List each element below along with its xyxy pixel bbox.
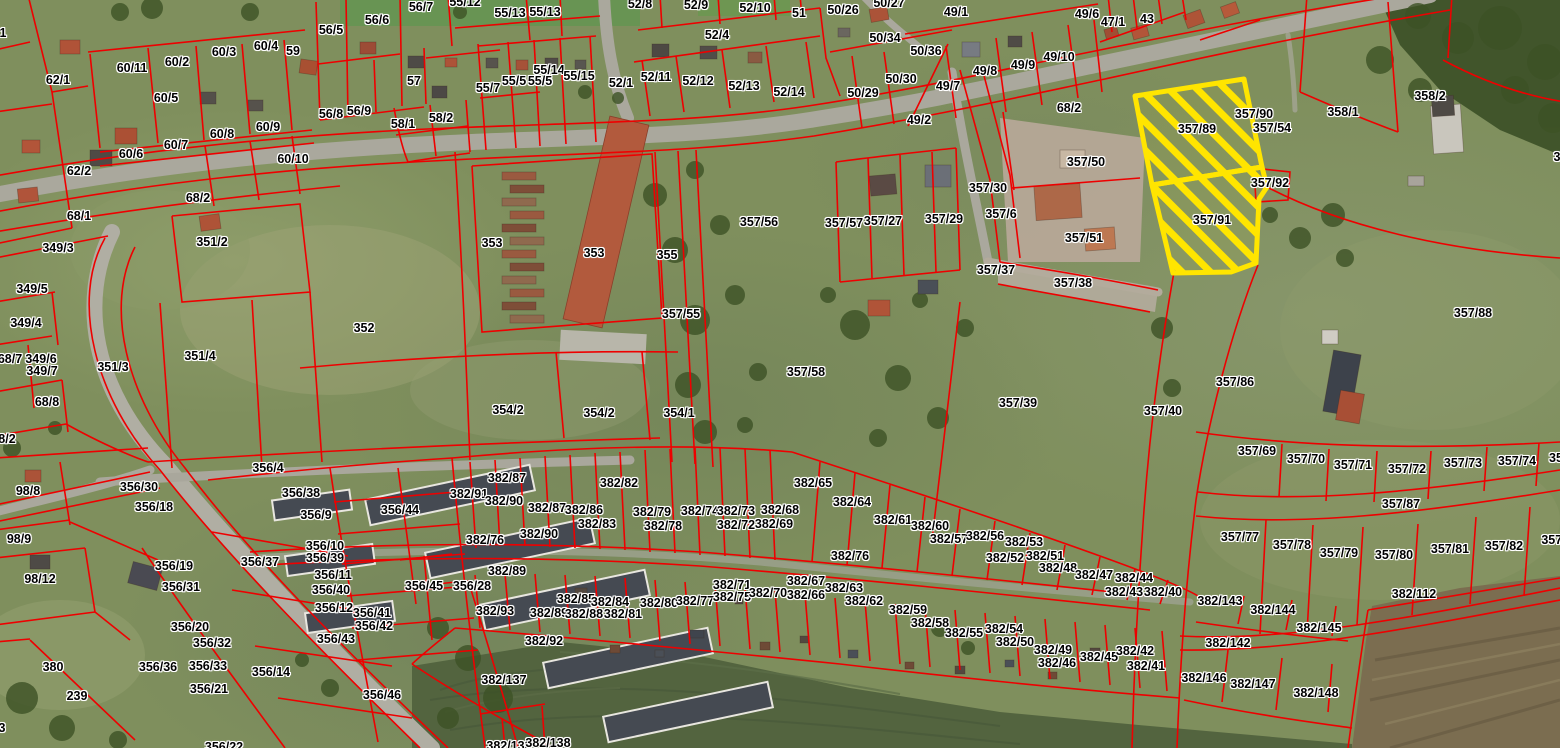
cadastral-map-canvas[interactable]: 162/160/1160/260/360/45956/556/656/755/1… [0,0,1560,748]
highlighted-parcels[interactable] [1135,79,1267,273]
map-graphics [0,0,1560,748]
fields-layer [0,0,1560,748]
highlight-parcel-357-91 [1152,167,1267,273]
